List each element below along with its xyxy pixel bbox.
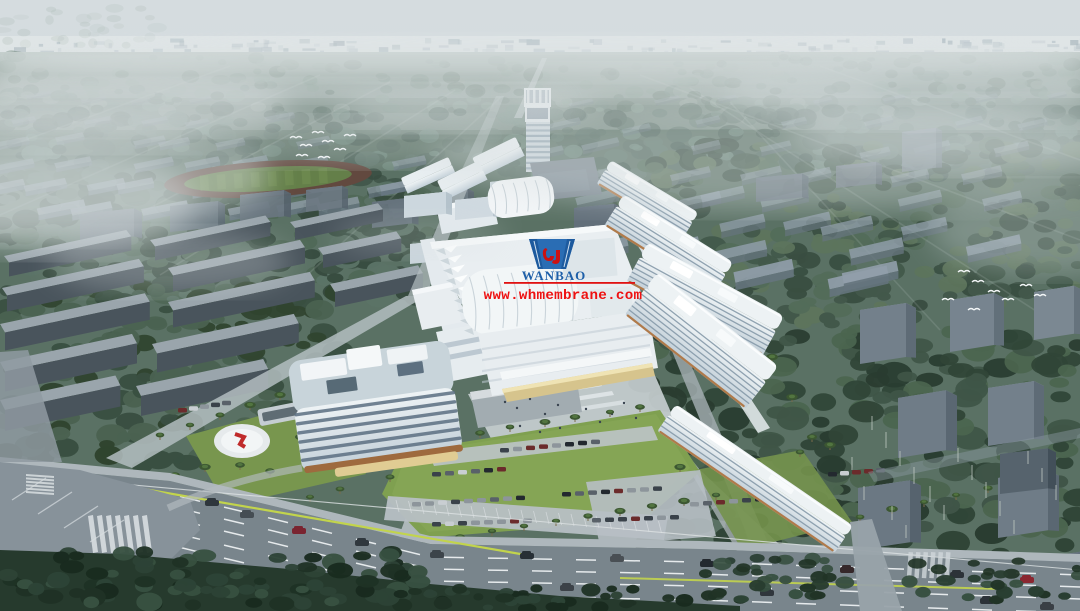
svg-text:www.whmembrane.com: www.whmembrane.com: [484, 288, 643, 304]
svg-text:WANBAO: WANBAO: [522, 268, 587, 283]
